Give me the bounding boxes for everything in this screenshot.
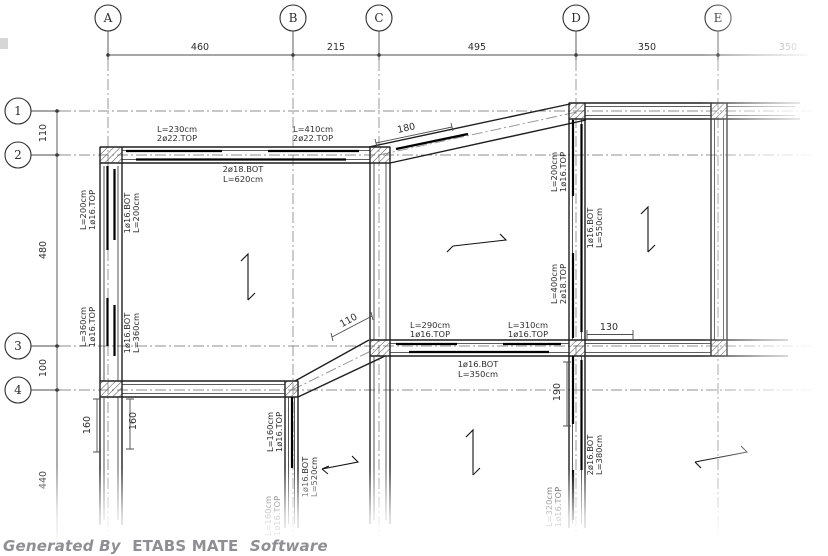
dim-label: 495 bbox=[468, 42, 486, 53]
beam-row4-A-B bbox=[100, 381, 298, 397]
column-A4 bbox=[100, 381, 122, 397]
rebar-label: L=360cm bbox=[131, 313, 141, 353]
footer-app-name: ETABS MATE bbox=[132, 537, 238, 555]
dim-label: 350 bbox=[638, 42, 656, 53]
footer-generated-by: Generated By bbox=[3, 537, 121, 555]
column-C2 bbox=[370, 147, 390, 163]
span-arrow-panel-E bbox=[641, 207, 655, 252]
span-arrow-panel-AB bbox=[241, 254, 255, 300]
grid-bubble-label-A: A bbox=[103, 11, 113, 25]
grid-bubble-label-4: 4 bbox=[14, 383, 22, 397]
rebar-label: 2ø22.TOP bbox=[293, 133, 333, 143]
dim-190-graphic bbox=[563, 362, 571, 426]
rebar-label: 2ø18.TOP bbox=[558, 264, 568, 304]
column-B4 bbox=[285, 381, 298, 397]
column-C3 bbox=[370, 340, 390, 356]
rebar-label: 1ø16.TOP bbox=[274, 412, 284, 452]
dim-label: 100 bbox=[38, 359, 49, 377]
rebar-label: L=350cm bbox=[458, 369, 498, 379]
grid-bubble-label-C: C bbox=[374, 11, 383, 25]
grid-bubble-label-B: B bbox=[289, 11, 298, 25]
column-A2 bbox=[100, 147, 122, 163]
rebar-label: L=550cm bbox=[594, 208, 604, 248]
rebar-label: 1ø16.TOP bbox=[508, 329, 548, 339]
dim-label: 480 bbox=[38, 241, 49, 259]
footer-credit: Generated By ETABS MATE Software bbox=[3, 537, 334, 555]
grid-bubble-label-D: D bbox=[571, 11, 581, 25]
dim-label: 110 bbox=[38, 124, 49, 142]
dim-label: 160 bbox=[82, 416, 93, 434]
rebar-label: 2ø22.TOP bbox=[157, 133, 197, 143]
grid-bubble-label-1: 1 bbox=[14, 104, 22, 118]
beam-reinforcement-plan-canvas: 4602154953503501104801004401301901601601… bbox=[0, 0, 828, 556]
rebar-label: L=620cm bbox=[223, 174, 263, 184]
rebar-label: L=200cm bbox=[131, 193, 141, 233]
footer-software-word: Software bbox=[250, 537, 328, 555]
dim-label: 180 bbox=[396, 121, 416, 136]
column-D1 bbox=[569, 103, 585, 119]
rebar-label: 1ø16.TOP bbox=[558, 152, 568, 192]
diagonal-centerline-B4-C3 bbox=[292, 347, 379, 390]
rebar-label: 2ø18.BOT bbox=[223, 164, 265, 174]
rebar-label: 1ø16.TOP bbox=[410, 329, 450, 339]
grid-bubble-label-2: 2 bbox=[14, 148, 22, 162]
dim-label: 110 bbox=[338, 312, 359, 330]
span-arrow-panel-CD-mid bbox=[447, 234, 506, 252]
beam-col-C bbox=[370, 147, 390, 524]
annotation-labels-layer: 4602154953503501104801004401301901601601… bbox=[38, 42, 797, 536]
column-D3 bbox=[569, 340, 585, 356]
rebar-label: 1ø16.TOP bbox=[87, 190, 97, 230]
left-edge-fragment bbox=[0, 38, 8, 49]
rebar-label: 1ø16.BOT bbox=[458, 359, 500, 369]
dim-label: 130 bbox=[600, 322, 618, 333]
dim-label: 460 bbox=[191, 42, 209, 53]
rebar-label: 1ø16.TOP bbox=[87, 307, 97, 347]
dim-label: 215 bbox=[327, 42, 345, 53]
structural-plan-drawing: 4602154953503501104801004401301901601601… bbox=[0, 0, 828, 556]
dim-label: 160 bbox=[128, 412, 139, 430]
grid-bubble-label-3: 3 bbox=[14, 339, 22, 353]
span-direction-arrows bbox=[241, 207, 747, 475]
dim-label: 190 bbox=[552, 383, 563, 401]
